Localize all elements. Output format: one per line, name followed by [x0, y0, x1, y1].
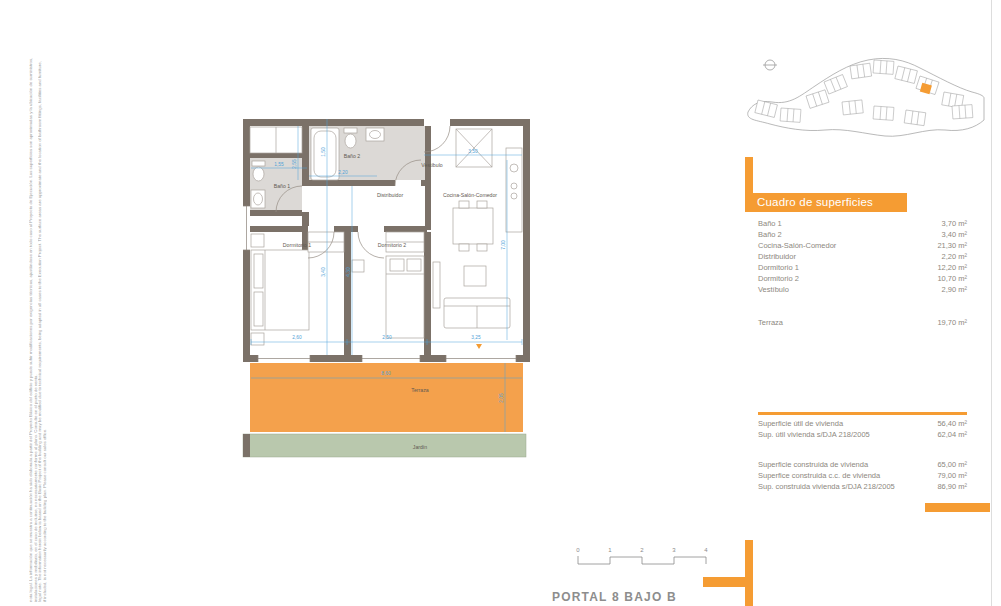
- dim-label: 1,50: [321, 147, 326, 157]
- table-row-useful: Superficie útil de vivienda56,40 m²: [758, 419, 967, 428]
- accent-bar-bottom-vertical: [745, 540, 753, 606]
- room-label-jardin: Jardín: [413, 444, 428, 450]
- row-value: 2,90 m²: [942, 285, 967, 294]
- dim-label: 1,55: [274, 162, 284, 167]
- row-label: Dormitorio 2: [758, 274, 799, 283]
- table-row: Dormitorio 112,20 m²: [758, 263, 967, 272]
- row-label: Distribuidor: [758, 252, 796, 261]
- row-label: Cocina-Salón-Comedor: [758, 241, 836, 250]
- row-value: 2,20 m²: [942, 252, 967, 261]
- accent-bar-wide: [925, 503, 990, 512]
- table-row-built: Sup. construida vivienda s/DJA 218/20058…: [758, 482, 967, 491]
- row-value: 56,40 m²: [937, 419, 967, 428]
- row-value: 12,20 m²: [937, 263, 967, 272]
- row-label: Dormitorio 1: [758, 263, 799, 272]
- site-plan: [745, 38, 990, 153]
- room-label-bano2: Baño 2: [344, 153, 361, 159]
- dim-label: 2,05: [499, 393, 504, 403]
- table-row-built: Superfice construida c.c. de vivienda79,…: [758, 471, 967, 480]
- scale-bar-line: [578, 556, 706, 564]
- garden-wall-stub: [243, 434, 250, 457]
- page-title: PORTAL 8 BAJO B: [552, 590, 677, 604]
- table-row-built: Superficie construida de vivienda65,00 m…: [758, 460, 967, 469]
- room-label-cocina-salon: Cocina-Salón-Comedor: [443, 192, 497, 198]
- scale-tick-label: 3: [672, 547, 676, 553]
- accent-bar-bottom-horizontal: [703, 577, 745, 587]
- dim-label: 2,50: [382, 335, 392, 340]
- scale-tick-label: 1: [608, 547, 612, 553]
- legal-note-line: if included, is not necessarily accordin…: [43, 16, 48, 602]
- accent-rule: [758, 412, 967, 415]
- row-label: Sup. útil vivienda s/DJA 218/2005: [758, 430, 870, 439]
- row-label: Baño 2: [758, 230, 782, 239]
- entrance-marker-icon: [476, 344, 482, 349]
- table-row: Dormitorio 210,70 m²: [758, 274, 967, 283]
- dim-label: 2,60: [292, 335, 302, 340]
- surfaces-table-title: Cuadro de superficies: [745, 193, 907, 212]
- garden-area: [243, 434, 526, 457]
- room-label-dormitorio2: Dormitorio 2: [378, 242, 406, 248]
- room-label-dormitorio1: Dormitorio 1: [283, 242, 311, 248]
- row-value: 86,90 m²: [937, 482, 967, 491]
- room-label-bano1: Baño 1: [274, 183, 291, 189]
- plan-sheet: nota legal. La información que se muestr…: [0, 0, 1001, 606]
- legal-note: nota legal. La información que se muestr…: [29, 16, 47, 602]
- row-value: 65,00 m²: [937, 460, 967, 469]
- floor-plan: 1,55 2,55 1,50 2,20 3,50 7,00 3,40 4,30 …: [230, 112, 540, 464]
- dim-label: 7,00: [501, 240, 506, 250]
- dim-label: 3,50: [468, 149, 478, 154]
- page-edge-line: [991, 0, 992, 606]
- row-value: 79,00 m²: [937, 471, 967, 480]
- north-symbol-icon: [763, 60, 777, 70]
- dim-label: 3,25: [471, 335, 481, 340]
- table-row: Vestíbulo2,90 m²: [758, 285, 967, 294]
- row-value: 3,70 m²: [942, 219, 967, 228]
- table-row-terrace: Terraza19,70 m²: [758, 318, 967, 327]
- table-row-useful: Sup. útil vivienda s/DJA 218/200562,04 m…: [758, 430, 967, 439]
- dim-label: 2,20: [338, 170, 348, 175]
- dim-label: 2,55: [292, 159, 297, 169]
- row-label: Superficie construida de vivienda: [758, 460, 868, 469]
- dim-label: 4,30: [346, 267, 351, 277]
- row-label: Vestíbulo: [758, 285, 789, 294]
- row-value: 21,30 m²: [937, 241, 967, 250]
- table-row: Baño 13,70 m²: [758, 219, 967, 228]
- scale-tick-label: 4: [704, 547, 708, 553]
- row-label: Sup. construida vivienda s/DJA 218/2005: [758, 482, 895, 491]
- row-value: 19,70 m²: [937, 318, 967, 327]
- scale-bar: 0 1 2 3 4: [575, 543, 720, 571]
- dim-label: 3,40: [321, 267, 326, 277]
- table-row: Cocina-Salón-Comedor21,30 m²: [758, 241, 967, 250]
- room-label-vestibulo: Vestíbulo: [421, 162, 442, 168]
- scale-tick-label: 0: [576, 547, 580, 553]
- row-label: Terraza: [758, 318, 783, 327]
- room-label-distribuidor: Distribuidor: [377, 192, 404, 198]
- table-row: Distribuidor2,20 m²: [758, 252, 967, 261]
- accent-bar-top: [745, 157, 753, 193]
- row-value: 3,40 m²: [942, 230, 967, 239]
- row-value: 10,70 m²: [937, 274, 967, 283]
- scale-tick-label: 2: [640, 547, 644, 553]
- row-label: Superfice construida c.c. de vivienda: [758, 471, 880, 480]
- table-row: Baño 23,40 m²: [758, 230, 967, 239]
- row-value: 62,04 m²: [937, 430, 967, 439]
- row-label: Baño 1: [758, 219, 782, 228]
- dim-label: 8,60: [381, 371, 391, 376]
- room-label-terraza: Terraza: [411, 387, 428, 393]
- row-label: Superficie útil de vivienda: [758, 419, 843, 428]
